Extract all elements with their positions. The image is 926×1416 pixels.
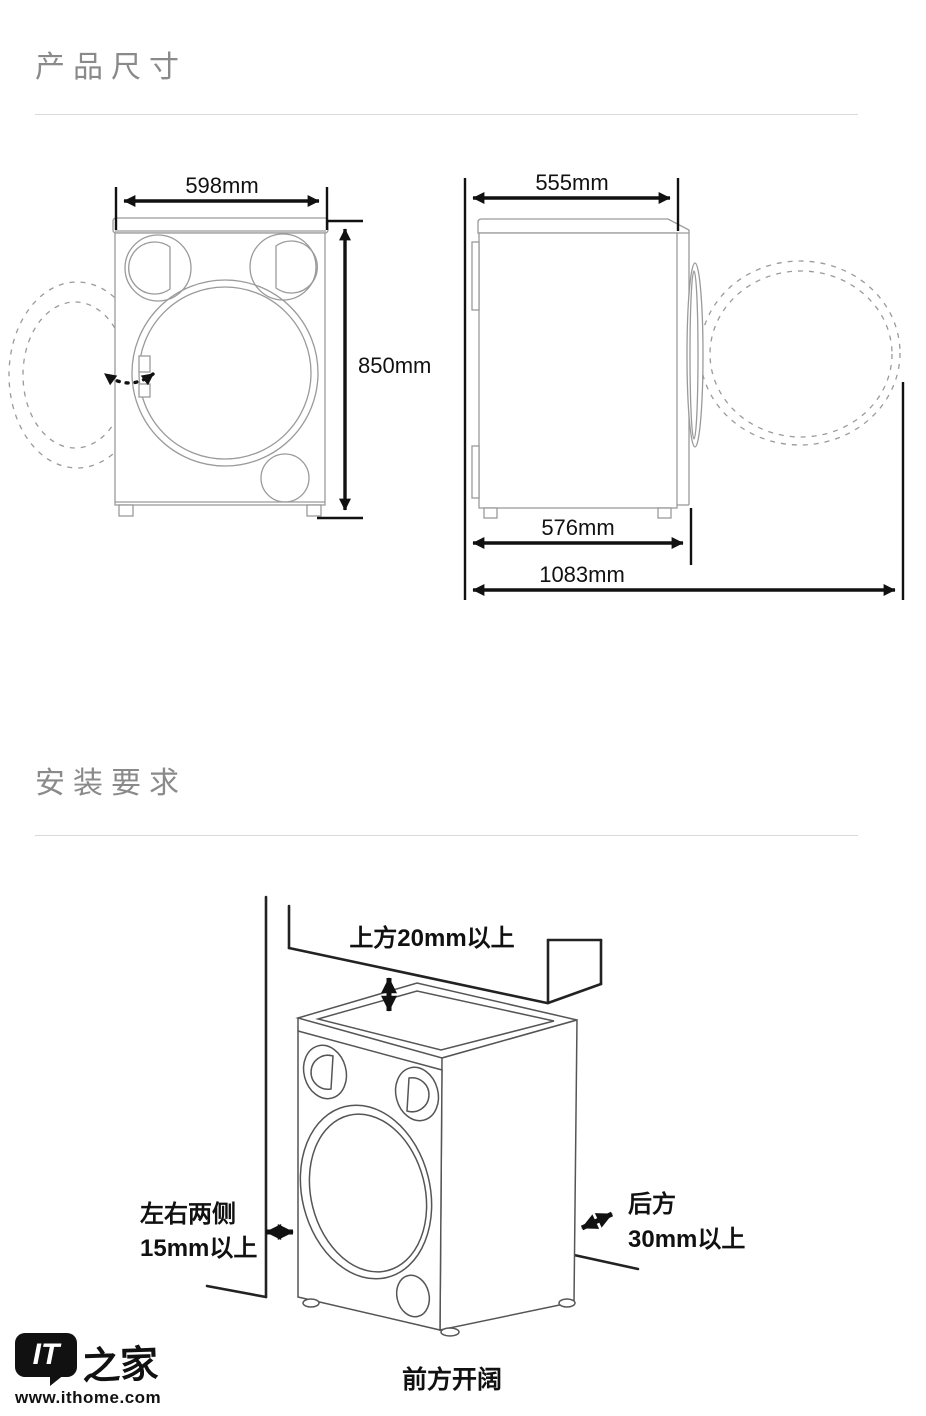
side-door-swing-outer <box>700 261 900 445</box>
rear-wall-line <box>574 1255 638 1269</box>
front-door-swing-inner <box>23 302 127 448</box>
side-door-swing-inner <box>710 271 892 437</box>
clearance-rear-label-1: 后方 <box>628 1190 676 1218</box>
width-dimension-label: 598mm <box>185 173 258 198</box>
clearance-front-label: 前方开阔 <box>402 1365 502 1394</box>
iso-front-face <box>298 1031 442 1330</box>
ithome-logo-it-text: IT <box>33 1338 60 1372</box>
iso-foot-right <box>559 1299 575 1307</box>
iso-foot-front <box>441 1328 459 1336</box>
side-view-machine <box>472 219 900 518</box>
ithome-logo-icon: IT <box>15 1333 77 1377</box>
floor-line <box>207 1286 266 1297</box>
depth-dimension-label: 555mm <box>535 170 608 195</box>
front-foot-left <box>119 505 133 516</box>
side-foot-left <box>484 508 497 518</box>
height-dimension-label: 850mm <box>358 353 431 378</box>
ithome-logo-home-text: 之家 <box>81 1333 159 1391</box>
front-hinge-bottom <box>139 384 150 397</box>
side-rear-panel-top <box>472 242 479 310</box>
body-depth-dimension-label: 576mm <box>541 515 614 540</box>
clearance-sides-label-1: 左右两侧 <box>140 1200 236 1228</box>
dimension-diagrams: 598mm 850mm 555mm 576mm 108 <box>0 0 926 1416</box>
door-open-dimension-label: 1083mm <box>539 562 625 587</box>
front-view-machine <box>9 218 328 516</box>
iso-foot-left <box>303 1299 319 1307</box>
clearance-sides-label-2: 15mm以上 <box>140 1235 257 1262</box>
ithome-logo-tail <box>50 1374 65 1386</box>
installation-machine <box>283 983 577 1336</box>
side-foot-right <box>658 508 671 518</box>
clearance-top-label: 上方20mm以上 <box>349 924 514 952</box>
front-foot-right <box>307 505 321 516</box>
side-top-panel <box>478 219 689 233</box>
clearance-rear-label-2: 30mm以上 <box>628 1226 745 1253</box>
side-body <box>479 233 677 508</box>
clearance-rear-arrow <box>582 1214 612 1228</box>
iso-side-face <box>440 1020 577 1330</box>
ithome-website-text: www.ithome.com <box>15 1388 161 1408</box>
front-hinge-top <box>139 356 150 372</box>
side-rear-panel-bottom <box>472 446 479 498</box>
cabinet-right-bottom <box>548 984 601 1003</box>
